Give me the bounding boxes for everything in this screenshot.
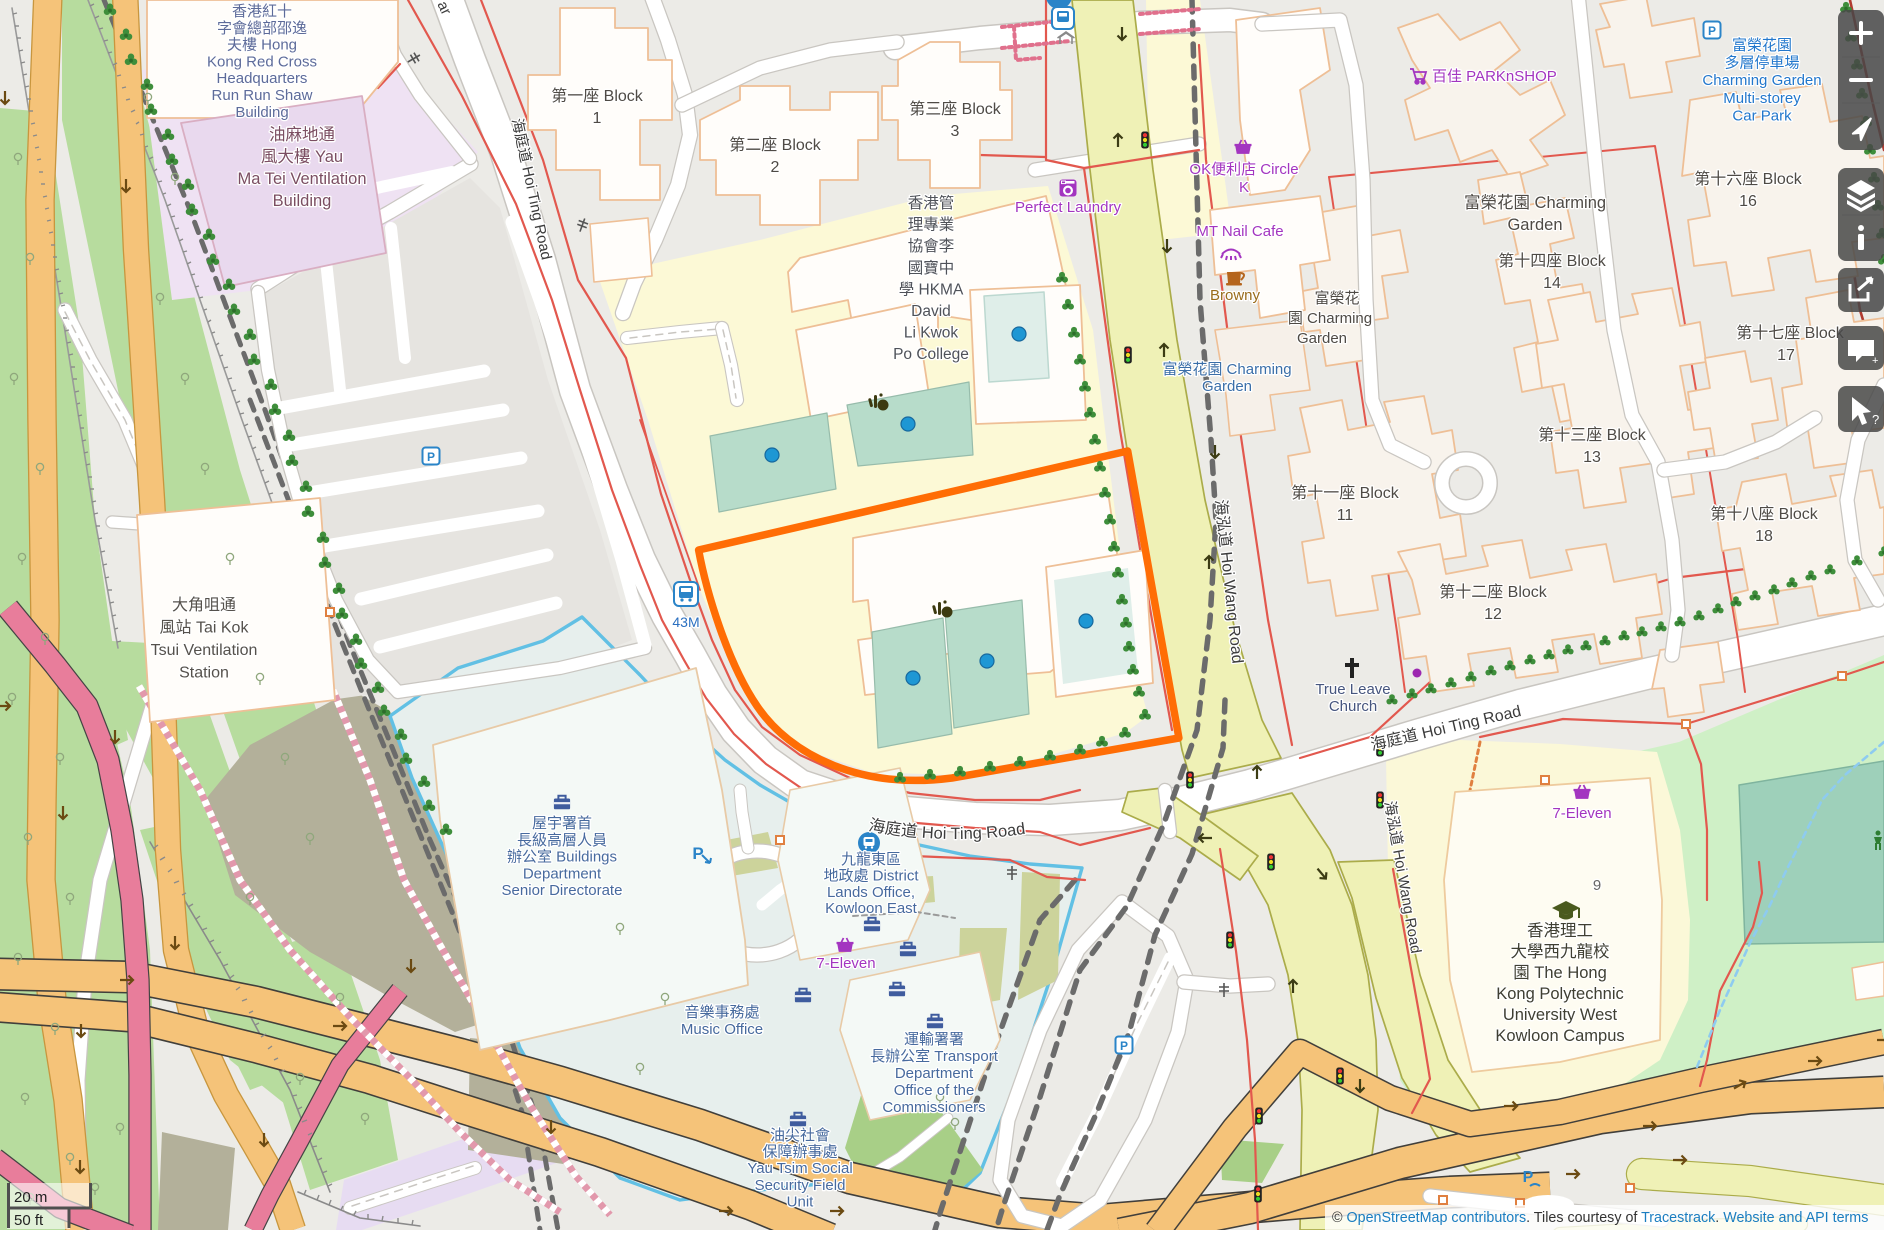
- svg-text:Lands Office,: Lands Office,: [827, 884, 915, 901]
- svg-text:油尖社會: 油尖社會: [770, 1127, 830, 1144]
- svg-text:富榮花園 Charming: 富榮花園 Charming: [1464, 193, 1606, 212]
- svg-text:大角咀通: 大角咀通: [172, 596, 236, 614]
- svg-text:16: 16: [1739, 193, 1757, 210]
- svg-text:第十一座 Block: 第十一座 Block: [1291, 484, 1400, 502]
- svg-text:18: 18: [1755, 528, 1773, 545]
- svg-text:17: 17: [1777, 347, 1795, 364]
- svg-text:Music Office: Music Office: [681, 1021, 763, 1038]
- svg-text:風大樓 Yau: 風大樓 Yau: [261, 147, 343, 166]
- svg-text:第十二座 Block: 第十二座 Block: [1439, 583, 1548, 601]
- svg-text:屋宇署首: 屋宇署首: [532, 815, 592, 832]
- svg-text:Department: Department: [523, 865, 602, 882]
- svg-text:第二座 Block: 第二座 Block: [729, 136, 822, 154]
- svg-text:辦公室 Buildings: 辦公室 Buildings: [507, 849, 617, 866]
- svg-text:9: 9: [1593, 877, 1601, 894]
- svg-text:第三座 Block: 第三座 Block: [909, 100, 1002, 118]
- svg-text:百佳 PARKnSHOP: 百佳 PARKnSHOP: [1432, 68, 1557, 85]
- svg-text:P: P: [692, 844, 703, 863]
- svg-text:P: P: [1708, 24, 1716, 38]
- svg-text:音樂事務處: 音樂事務處: [684, 1004, 759, 1021]
- svg-text:Ma Tei Ventilation: Ma Tei Ventilation: [237, 170, 366, 188]
- svg-text:保障辦事處: 保障辦事處: [762, 1143, 837, 1161]
- svg-text:University West: University West: [1503, 1006, 1618, 1024]
- svg-text:11: 11: [1337, 507, 1354, 524]
- svg-text:13: 13: [1583, 449, 1601, 466]
- svg-text:Tsui Ventilation: Tsui Ventilation: [151, 642, 258, 659]
- svg-text:九龍東區: 九龍東區: [841, 851, 901, 868]
- svg-text:Kowloon East: Kowloon East: [825, 900, 918, 917]
- svg-text:P: P: [1523, 1169, 1534, 1186]
- svg-text:第十六座 Block: 第十六座 Block: [1694, 170, 1803, 188]
- svg-text:43M: 43M: [672, 614, 699, 630]
- svg-text:大學西九龍校: 大學西九龍校: [1511, 942, 1610, 961]
- svg-text:香港理工: 香港理工: [1527, 921, 1593, 940]
- svg-text:第一座 Block: 第一座 Block: [551, 87, 644, 105]
- svg-text:運輸署署: 運輸署署: [904, 1031, 964, 1048]
- svg-text:Commissioners: Commissioners: [882, 1099, 985, 1116]
- svg-text:Multi-storey: Multi-storey: [1723, 90, 1801, 107]
- svg-text:學 HKMA: 學 HKMA: [899, 279, 964, 298]
- svg-text:長級高層人員: 長級高層人員: [517, 832, 607, 849]
- svg-text:協會李: 協會李: [908, 237, 955, 255]
- svg-text:第十八座 Block: 第十八座 Block: [1710, 505, 1819, 523]
- svg-text:12: 12: [1484, 606, 1502, 623]
- svg-text:Church: Church: [1329, 698, 1377, 715]
- svg-text:3: 3: [951, 123, 960, 140]
- svg-text:Car Park: Car Park: [1732, 107, 1792, 124]
- svg-text:Building: Building: [235, 104, 288, 121]
- svg-text:© OpenStreetMap contributors.: © OpenStreetMap contributors. Tiles cour…: [1332, 1210, 1868, 1226]
- svg-text:Kong Polytechnic: Kong Polytechnic: [1496, 985, 1624, 1003]
- svg-text:Run Run Shaw: Run Run Shaw: [212, 87, 313, 104]
- svg-text:Garden: Garden: [1507, 216, 1562, 234]
- svg-text:K: K: [1239, 179, 1249, 196]
- svg-text:1: 1: [593, 110, 602, 127]
- svg-text:理專業: 理專業: [908, 216, 955, 234]
- svg-text:Charming Garden: Charming Garden: [1702, 72, 1821, 89]
- svg-text:Perfect Laundry: Perfect Laundry: [1015, 199, 1121, 216]
- svg-text:Station: Station: [179, 665, 229, 682]
- svg-text:7-Eleven: 7-Eleven: [816, 955, 875, 972]
- svg-text:長辦公室 Transport: 長辦公室 Transport: [870, 1048, 999, 1065]
- svg-text:2: 2: [771, 159, 780, 176]
- svg-text:OK便利店 Circle: OK便利店 Circle: [1189, 161, 1298, 178]
- svg-text:香港管: 香港管: [908, 194, 955, 212]
- svg-text:富榮花園 Charming: 富榮花園 Charming: [1162, 360, 1291, 378]
- svg-text:油麻地通: 油麻地通: [269, 125, 335, 144]
- svg-text:Department: Department: [895, 1065, 974, 1082]
- svg-text:Office of the: Office of the: [894, 1082, 975, 1099]
- svg-text:國寶中: 國寶中: [908, 258, 955, 277]
- svg-text:P: P: [427, 450, 435, 464]
- svg-text:50 ft: 50 ft: [14, 1212, 44, 1229]
- svg-text:+: +: [1872, 355, 1878, 367]
- svg-text:Unit: Unit: [787, 1193, 815, 1210]
- svg-text:7-Eleven: 7-Eleven: [1552, 805, 1611, 822]
- svg-text:香港紅十: 香港紅十: [232, 3, 292, 20]
- svg-text:Browny: Browny: [1210, 287, 1261, 304]
- svg-text:夫樓 Hong: 夫樓 Hong: [227, 37, 297, 54]
- svg-text:P: P: [1120, 1039, 1128, 1053]
- svg-text:第十四座 Block: 第十四座 Block: [1498, 252, 1607, 270]
- svg-text:?: ?: [1872, 412, 1879, 427]
- svg-text:Building: Building: [273, 192, 332, 210]
- svg-text:多層停車場: 多層停車場: [1724, 55, 1799, 72]
- svg-text:第十七座 Block: 第十七座 Block: [1736, 324, 1845, 342]
- svg-text:Kong Red Cross: Kong Red Cross: [207, 53, 317, 70]
- svg-text:園 The Hong: 園 The Hong: [1513, 964, 1607, 982]
- svg-text:Li Kwok: Li Kwok: [904, 325, 959, 342]
- svg-text:True Leave: True Leave: [1315, 681, 1390, 698]
- svg-text:富榮花園: 富榮花園: [1732, 36, 1792, 54]
- svg-text:David: David: [911, 303, 951, 320]
- svg-text:Senior Directorate: Senior Directorate: [502, 882, 623, 899]
- svg-text:Security Field: Security Field: [755, 1177, 846, 1194]
- svg-text:Kowloon Campus: Kowloon Campus: [1495, 1027, 1624, 1045]
- svg-text:第十三座 Block: 第十三座 Block: [1538, 426, 1647, 444]
- svg-text:Headquarters: Headquarters: [217, 70, 308, 87]
- svg-text:園 Charming: 園 Charming: [1288, 310, 1372, 327]
- svg-text:富榮花: 富榮花: [1314, 289, 1359, 307]
- svg-text:Garden: Garden: [1297, 330, 1347, 347]
- svg-text:20 m: 20 m: [14, 1189, 47, 1206]
- svg-text:MT Nail Cafe: MT Nail Cafe: [1196, 223, 1283, 240]
- svg-text:14: 14: [1543, 275, 1561, 292]
- svg-text:風站 Tai Kok: 風站 Tai Kok: [160, 619, 250, 637]
- svg-text:地政處 District: 地政處 District: [824, 867, 920, 884]
- svg-text:Po College: Po College: [893, 346, 969, 363]
- svg-text:Yau Tsim Social: Yau Tsim Social: [747, 1160, 852, 1177]
- svg-text:Garden: Garden: [1202, 378, 1252, 395]
- svg-text:字會總部邵逸: 字會總部邵逸: [217, 19, 307, 37]
